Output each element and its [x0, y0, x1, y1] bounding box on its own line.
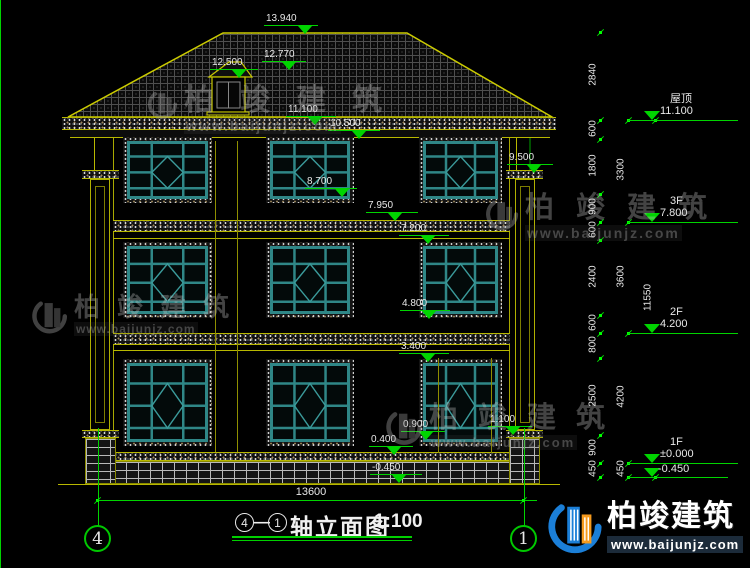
dim-node — [599, 434, 602, 437]
window — [123, 242, 212, 318]
level-triangle-icon — [419, 432, 433, 440]
window-frame — [127, 363, 208, 442]
dim-value: 3300 — [616, 128, 627, 212]
elevation-marker: -0.450 — [370, 463, 422, 475]
level-label: 3F7.800 — [660, 195, 688, 219]
elevation-marker-label: 4.800 — [402, 299, 449, 309]
wall-corner-left — [94, 138, 95, 171]
level-line — [628, 120, 738, 121]
elevation-marker: 3.400 — [399, 342, 449, 354]
brand-logo: 柏竣建筑 www.baijunjz.com — [545, 500, 743, 556]
level-line — [628, 477, 728, 478]
drawing-scale: 1:100 — [374, 511, 423, 533]
base-brick — [113, 461, 510, 484]
dim-value: 450 — [588, 427, 599, 511]
level-label: 屋顶11.100 — [660, 93, 693, 117]
level-triangle-icon — [392, 475, 406, 483]
window — [123, 359, 212, 446]
elevation-marker-label: 12.500 — [212, 58, 257, 68]
window-frame — [423, 141, 498, 199]
elevation-marker: 12.500 — [210, 58, 258, 70]
brand-icon — [545, 500, 603, 556]
level-line — [628, 333, 738, 334]
dormer-sill — [207, 112, 249, 115]
level-triangle-icon — [421, 236, 435, 244]
elevation-marker: 1.100 — [488, 415, 532, 427]
window — [266, 242, 354, 318]
level-triangle-icon — [298, 26, 312, 34]
window — [419, 137, 502, 203]
wall-joint — [237, 141, 238, 452]
floor-line-2f — [113, 350, 510, 351]
dim-node — [599, 314, 602, 317]
wall-joint — [491, 358, 492, 453]
title-axis-end-circle: 1 — [268, 513, 287, 532]
pilaster-left-capital — [82, 170, 119, 179]
level-triangle-icon — [387, 447, 401, 455]
dim-node — [599, 193, 602, 196]
floor-band-2f — [113, 333, 510, 345]
window — [123, 137, 212, 203]
elevation-marker-label: 3.400 — [401, 342, 448, 352]
elevation-marker: 0.400 — [369, 435, 413, 447]
window-frame — [270, 363, 350, 442]
axis-bubble-4-label: 4 — [92, 529, 103, 549]
elevation-marker-label: 7.200 — [401, 224, 448, 234]
base-band — [113, 452, 510, 461]
window — [266, 359, 354, 446]
level-triangle-icon — [282, 62, 296, 70]
dim-node — [599, 31, 602, 34]
dim-node — [599, 138, 602, 141]
title-underline — [232, 536, 412, 538]
level-triangle-icon — [388, 213, 402, 221]
level-triangle-icon — [644, 213, 660, 222]
elevation-marker: 7.950 — [366, 201, 418, 213]
level-triangle-icon — [527, 165, 541, 173]
level-triangle-icon — [644, 324, 660, 333]
elevation-marker-label: -0.450 — [372, 463, 421, 473]
elevation-marker-label: 12.770 — [264, 50, 305, 60]
pilaster-left-cap2 — [82, 430, 119, 438]
elevation-marker: 0.900 — [401, 420, 445, 432]
elevation-marker-label: 9.500 — [509, 153, 552, 163]
elevation-marker: 11.100 — [286, 105, 336, 117]
elevation-marker: 12.770 — [262, 50, 306, 62]
elevation-marker: 10.500 — [328, 119, 380, 131]
brand-url: www.baijunjz.com — [607, 536, 743, 553]
brand-name: 柏竣建筑 — [607, 500, 743, 534]
axis-line-right — [524, 428, 525, 526]
elevation-marker: 8.700 — [305, 177, 357, 189]
dim-value: 3600 — [616, 234, 627, 318]
level-line — [628, 222, 738, 223]
window-frame — [127, 141, 208, 199]
bottom-dim-line — [97, 500, 537, 501]
elevation-marker-label: 10.500 — [330, 119, 379, 129]
window-frame — [270, 246, 350, 314]
dim-node — [599, 357, 602, 360]
elevation-marker-label: 7.950 — [368, 201, 417, 211]
wall-joint — [438, 358, 439, 453]
axis-bubble-1-label: 1 — [518, 529, 529, 549]
title-axis-start-circle: 4 — [235, 513, 254, 532]
elevation-marker: 4.800 — [400, 299, 450, 311]
level-triangle-icon — [352, 131, 366, 139]
level-triangle-icon — [232, 70, 246, 78]
elevation-marker: 9.500 — [507, 153, 553, 165]
level-triangle-icon — [506, 427, 520, 435]
axis-bubble-1: 1 — [510, 525, 537, 552]
title-axis-end: 1 — [274, 516, 281, 530]
level-triangle-icon — [644, 454, 660, 463]
pilaster-left-pedestal — [85, 438, 116, 484]
cad-elevation-drawing: 13600 4 1 4 — 1 轴立面图 1:100 柏竣建筑 — [0, 0, 750, 568]
title-axis-start: 4 — [241, 516, 248, 530]
dim-value: 450 — [616, 427, 627, 511]
pilaster-right-panel — [520, 186, 530, 423]
axis-line-left — [98, 428, 99, 526]
elevation-marker-label: 1.100 — [490, 415, 531, 425]
level-label: 2F4.200 — [660, 306, 688, 330]
bottom-dim-text: 13600 — [280, 486, 342, 498]
dim-node — [599, 332, 602, 335]
title-underline2 — [232, 540, 412, 541]
level-triangle-icon — [421, 354, 435, 362]
level-triangle-icon — [308, 117, 322, 125]
axis-bubble-4: 4 — [84, 525, 111, 552]
elevation-marker-label: 0.400 — [371, 435, 412, 445]
level-label: 1F±0.000 — [660, 436, 694, 460]
elevation-marker-label: 0.900 — [403, 420, 444, 430]
elevation-marker-label: 8.700 — [307, 177, 356, 187]
elevation-marker: 13.940 — [264, 14, 318, 26]
floor-line-3f — [113, 238, 510, 239]
dim-node — [599, 119, 602, 122]
level-triangle-icon — [335, 189, 349, 197]
wall-joint — [215, 141, 216, 452]
level-triangle-icon — [422, 311, 436, 319]
window-frame — [127, 246, 208, 314]
dim-node — [599, 476, 602, 479]
level-triangle-icon — [644, 111, 660, 120]
dim-node — [599, 462, 602, 465]
elevation-marker: 7.200 — [399, 224, 449, 236]
elevation-marker-label: 11.100 — [288, 105, 335, 115]
dim-node — [599, 221, 602, 224]
level-label: -0.450 — [658, 463, 689, 475]
pilaster-left-panel — [95, 186, 105, 423]
elevation-marker-label: 13.940 — [266, 14, 317, 24]
dim-node — [599, 239, 602, 242]
ground-line — [58, 484, 560, 485]
floor-band-3f — [113, 220, 510, 232]
